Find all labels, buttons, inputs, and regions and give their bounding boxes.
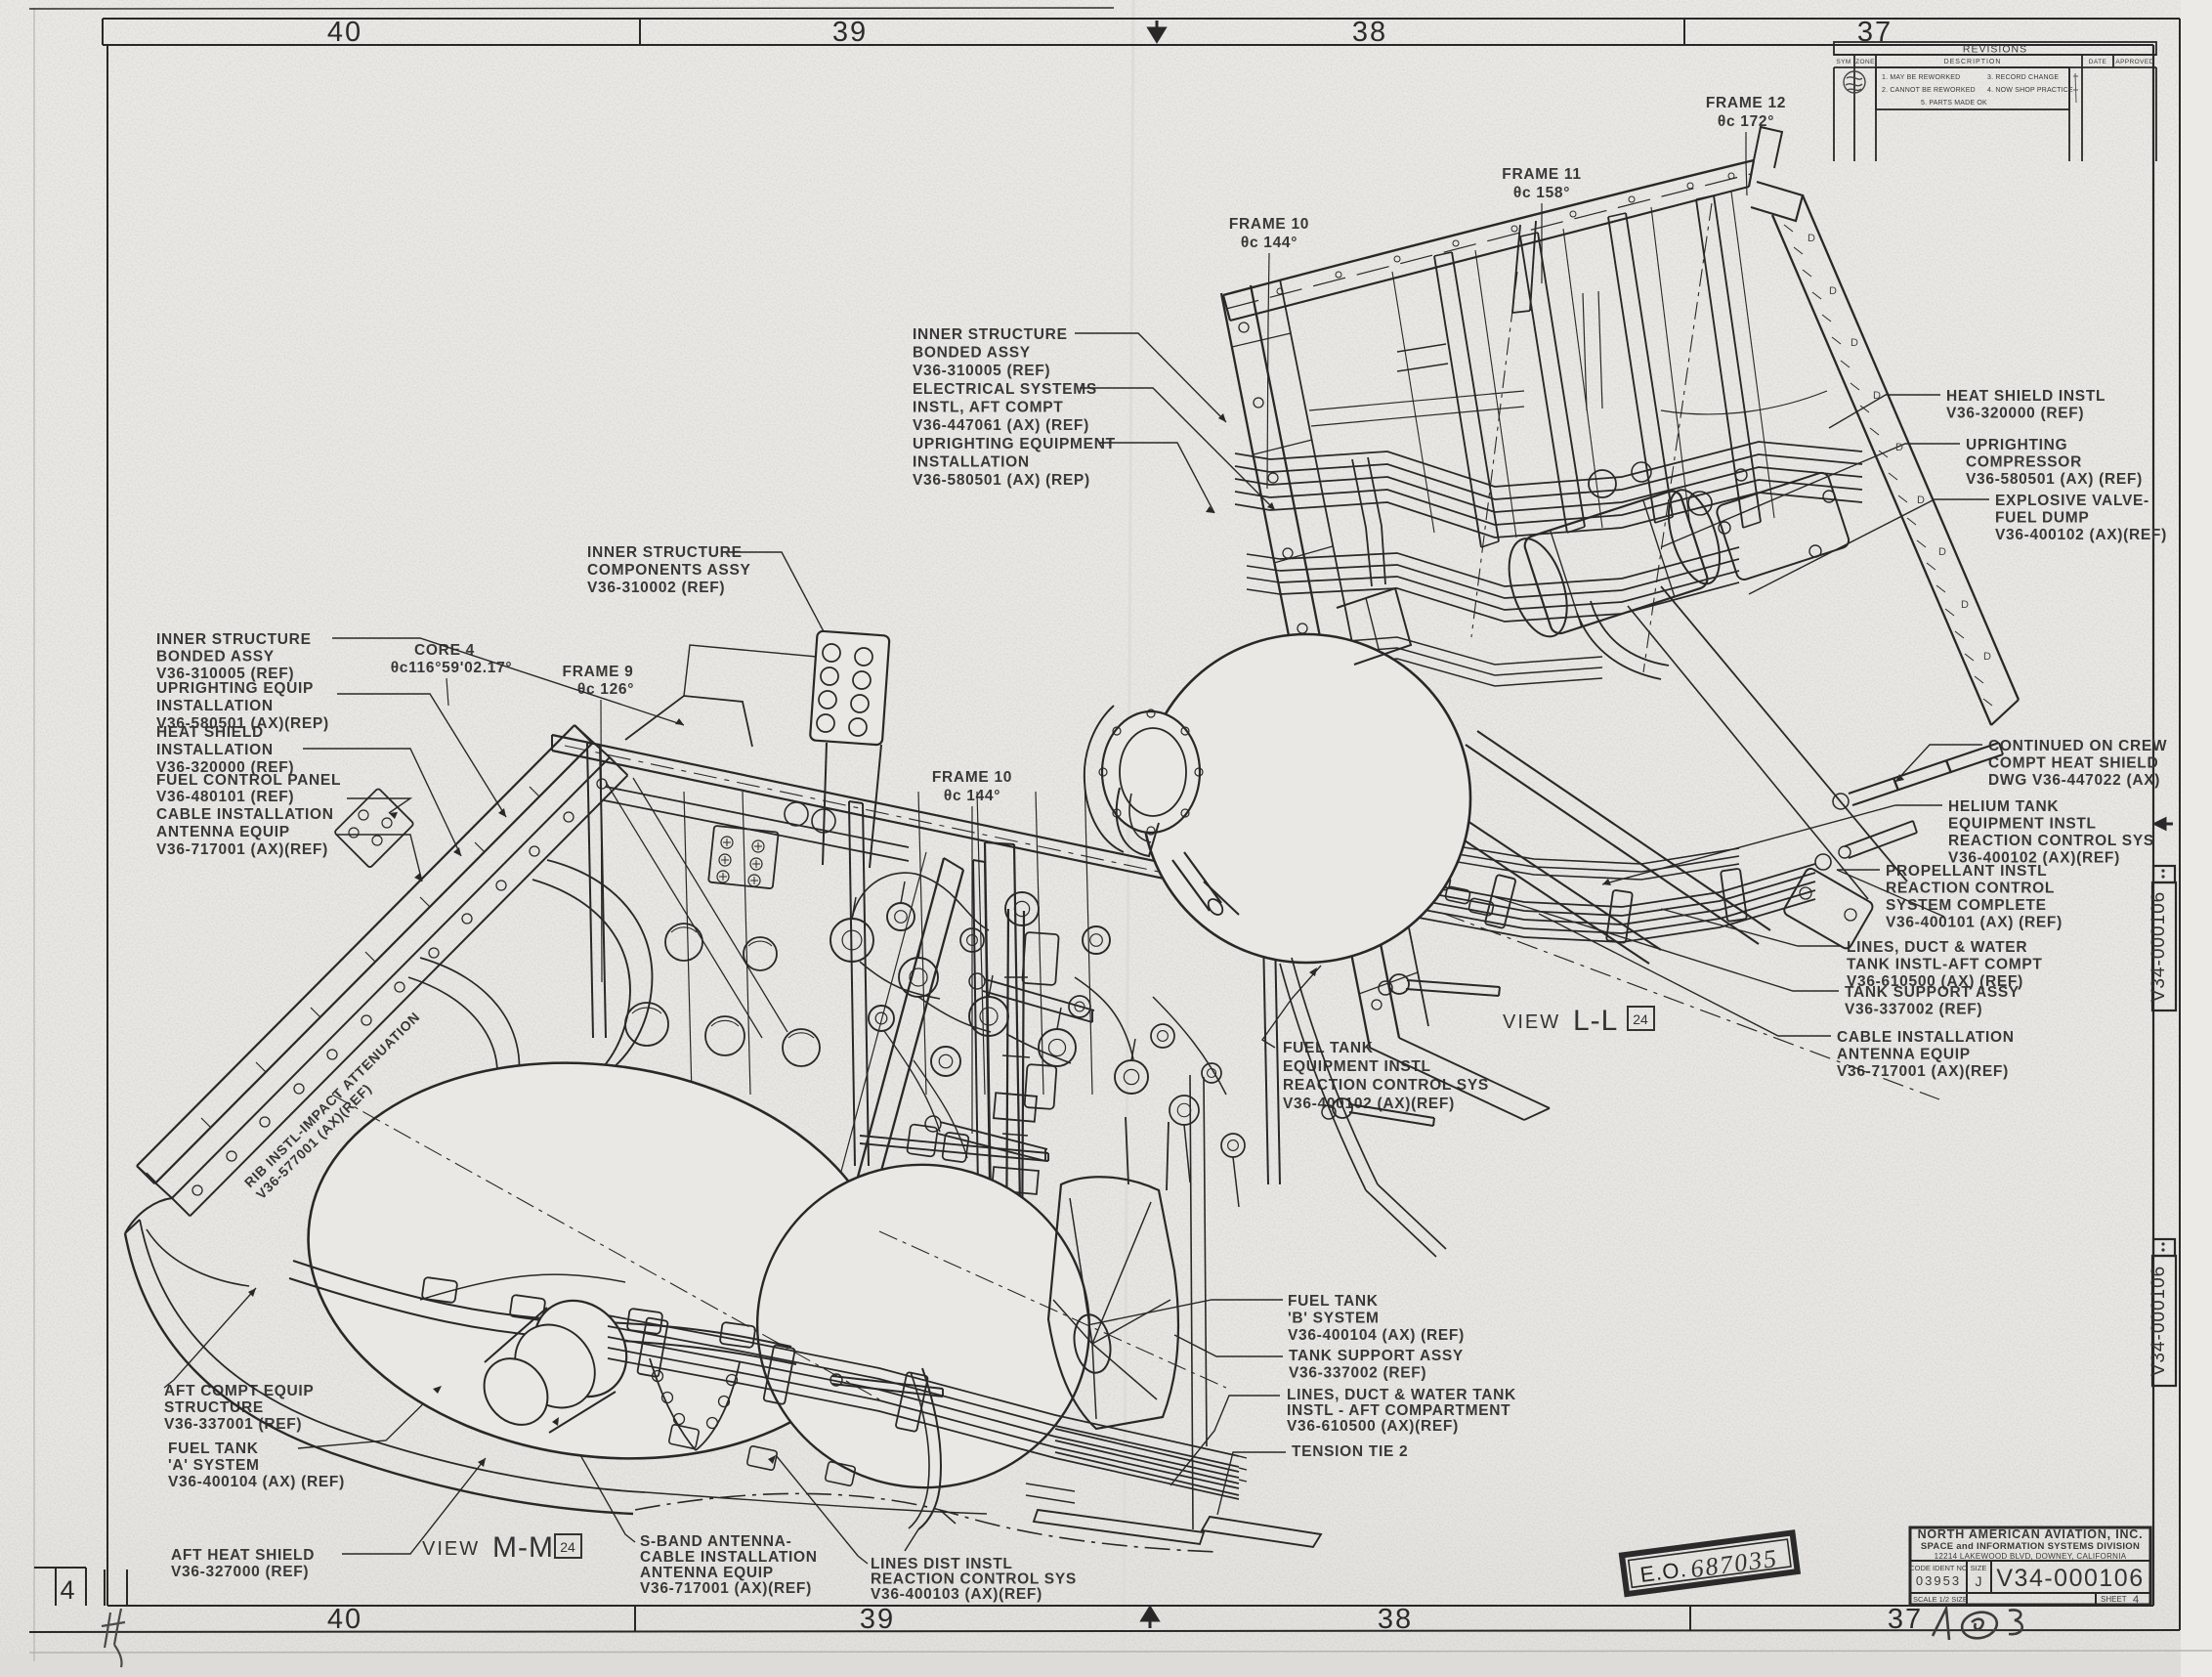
svg-text:SPACE and INFORMATION SYSTEMS: SPACE and INFORMATION SYSTEMS DIVISION: [1921, 1541, 2140, 1552]
svg-text:FRAME 10: FRAME 10: [932, 769, 1012, 786]
svg-text:D: D: [1917, 494, 1925, 506]
svg-text:V34-000106: V34-000106: [1996, 1565, 2144, 1592]
svg-text:CORE 4: CORE 4: [414, 642, 475, 659]
svg-text:FRAME 12: FRAME 12: [1706, 95, 1786, 111]
svg-text:DESCRIPTION: DESCRIPTION: [1944, 59, 2002, 65]
svg-text:D: D: [1938, 546, 1946, 558]
svg-text:D: D: [1961, 599, 1969, 611]
svg-text:38: 38: [1352, 17, 1387, 48]
svg-text:θc 144°: θc 144°: [1241, 235, 1297, 251]
svg-text:5. PARTS MADE OK: 5. PARTS MADE OK: [1921, 100, 1987, 107]
svg-text:VIEW: VIEW: [1503, 1011, 1560, 1033]
svg-text:AFT HEAT SHIELDV36-327000 (REF: AFT HEAT SHIELDV36-327000 (REF): [171, 1547, 315, 1580]
svg-text:D: D: [1850, 337, 1858, 349]
svg-text:39: 39: [860, 1604, 895, 1635]
svg-text:D: D: [1895, 442, 1903, 453]
svg-text:CONTINUED ON CREWCOMPT HEAT SH: CONTINUED ON CREWCOMPT HEAT SHIELDDWG V3…: [1988, 738, 2167, 789]
svg-text:24: 24: [1633, 1011, 1648, 1027]
svg-text:SHEET: SHEET: [2101, 1595, 2127, 1604]
svg-text:12214 LAKEWOOD BLVD, DOWNEY, C: 12214 LAKEWOOD BLVD, DOWNEY, CALIFORNIA: [1935, 1552, 2127, 1561]
svg-text:D: D: [1983, 651, 1991, 663]
svg-text:37: 37: [1888, 1604, 1923, 1635]
svg-text:M-M: M-M: [492, 1531, 554, 1564]
svg-text:4. NOW SHOP PRACTICE: 4. NOW SHOP PRACTICE: [1987, 87, 2073, 94]
svg-text:NORTH AMERICAN AVIATION, INC.: NORTH AMERICAN AVIATION, INC.: [1918, 1527, 2144, 1541]
svg-text:03953: 03953: [1916, 1573, 1961, 1588]
svg-text:38: 38: [1378, 1604, 1413, 1635]
svg-text:REVISIONS: REVISIONS: [1963, 44, 2027, 56]
svg-text:S-BAND ANTENNA-CABLE INSTALLAT: S-BAND ANTENNA-CABLE INSTALLATIONANTENNA…: [640, 1533, 818, 1597]
svg-text:4: 4: [60, 1575, 74, 1605]
svg-text:40: 40: [327, 17, 362, 48]
svg-text:40: 40: [327, 1604, 362, 1635]
svg-text:FRAME 11: FRAME 11: [1502, 166, 1581, 183]
svg-text:V34-000106: V34-000106: [2148, 1266, 2169, 1377]
svg-text:3. RECORD CHANGE: 3. RECORD CHANGE: [1987, 74, 2059, 81]
svg-text:θc 144°: θc 144°: [944, 788, 1000, 804]
svg-text:LINES, DUCT & WATERTANK INSTL-: LINES, DUCT & WATERTANK INSTL-AFT COMPTV…: [1847, 939, 2043, 990]
svg-text:FRAME 10: FRAME 10: [1229, 216, 1309, 233]
svg-text:L-L: L-L: [1573, 1005, 1618, 1037]
svg-text:SYM: SYM: [1836, 59, 1850, 65]
svg-text:D: D: [1873, 390, 1881, 402]
svg-text:CODE IDENT NO: CODE IDENT NO: [1909, 1564, 1968, 1572]
svg-text:1. MAY BE REWORKED: 1. MAY BE REWORKED: [1882, 74, 1960, 81]
svg-text:TENSION TIE 2: TENSION TIE 2: [1292, 1443, 1408, 1460]
svg-text:37: 37: [1857, 17, 1893, 48]
svg-text:24: 24: [560, 1539, 575, 1555]
svg-text:VIEW: VIEW: [422, 1538, 480, 1560]
svg-text:39: 39: [832, 17, 868, 48]
svg-text:4: 4: [2133, 1594, 2139, 1606]
svg-text:θc 158°: θc 158°: [1513, 185, 1570, 201]
svg-text:DATE: DATE: [2089, 59, 2107, 65]
svg-text:PROPELLANT INSTLREACTION CONTR: PROPELLANT INSTLREACTION CONTROLSYSTEM C…: [1886, 863, 2063, 931]
svg-text:SIZE: SIZE: [1971, 1564, 1987, 1572]
svg-text:FRAME 9: FRAME 9: [563, 664, 634, 680]
svg-text:SCALE 1/2 SIZE: SCALE 1/2 SIZE: [1913, 1595, 1968, 1604]
svg-text:HEAT SHIELD INSTLV36-320000 (R: HEAT SHIELD INSTLV36-320000 (REF): [1946, 388, 2106, 422]
svg-text:V34-000106: V34-000106: [2148, 891, 2169, 1003]
svg-text:J: J: [1976, 1573, 1982, 1589]
svg-text:ZONE: ZONE: [1855, 59, 1875, 65]
svg-text:D: D: [1808, 233, 1815, 244]
svg-text:2. CANNOT BE REWORKED: 2. CANNOT BE REWORKED: [1882, 87, 1976, 94]
svg-text:θc 126°: θc 126°: [577, 681, 634, 698]
svg-text:D: D: [1829, 285, 1837, 297]
svg-text:APPROVED: APPROVED: [2115, 59, 2153, 65]
